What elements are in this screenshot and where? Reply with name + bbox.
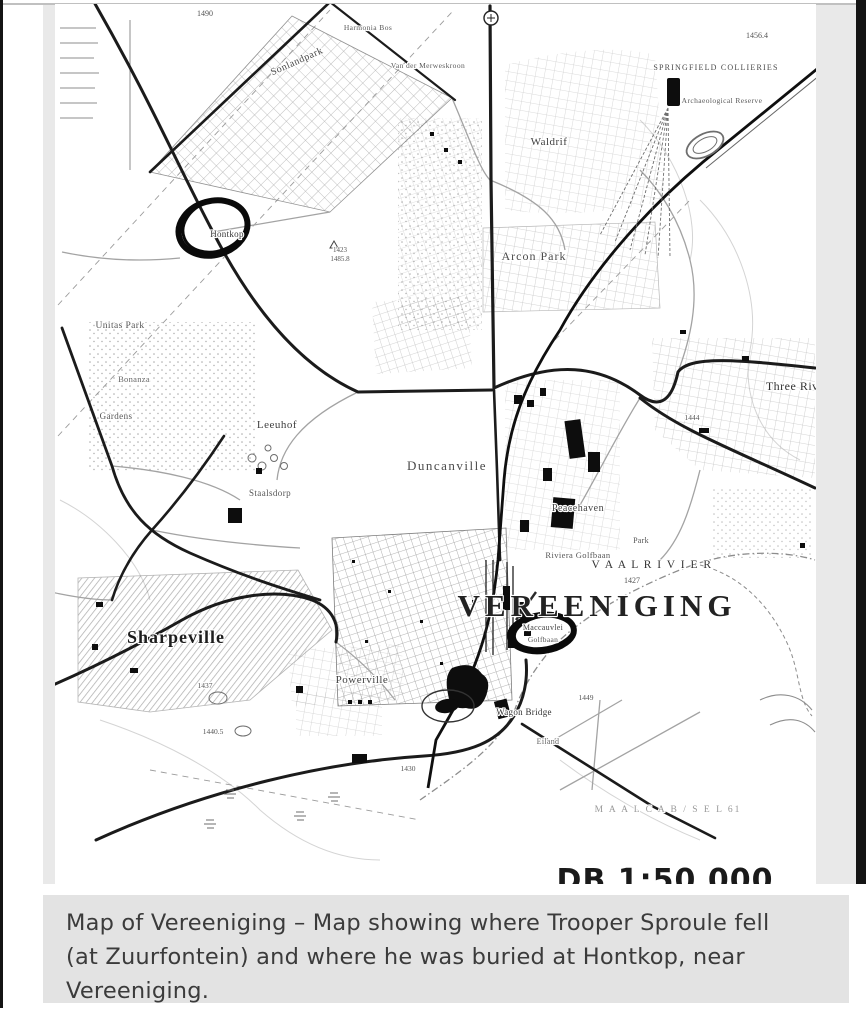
map-label-hontkop: Hontkop <box>210 229 244 239</box>
map-label-sharpeville: Sharpeville <box>127 627 225 647</box>
map-label-vaalrivier: V A A L R I V I E R <box>591 559 712 571</box>
route-marker-icon <box>484 11 498 25</box>
page: VEREENIGINGSharpevilleDuncanvilleArcon P… <box>0 0 866 1024</box>
map-label-golfbaan: Golfbaan <box>528 635 558 644</box>
map-label-park: Park <box>633 536 649 545</box>
caption-line-1: Map of Vereeniging – Map showing where T… <box>66 906 829 940</box>
map-label-spot-1449: 1449 <box>579 693 594 702</box>
map-image: VEREENIGINGSharpevilleDuncanvilleArcon P… <box>55 4 816 884</box>
map-label-scale-note: DB 1:50 000 <box>557 863 774 884</box>
map-label-riviera-golfbaan: Riviera Golfbaan <box>545 550 611 560</box>
map-label-staalsdorp: Staalsdorp <box>249 488 291 498</box>
map-label-farm-name: M A A L C A B / S E L 61 <box>595 805 742 815</box>
map-label-wagon-bridge: Wagon Bridge <box>496 707 552 717</box>
map-label-duncanville: Duncanville <box>407 458 487 473</box>
map-label-powerville: Powerville <box>336 674 389 686</box>
map-label-harmonia-bos: Harmonia Bos <box>344 23 392 32</box>
map-label-spot-1430: 1430 <box>401 764 416 773</box>
map-label-peacehaven: Peacehaven <box>552 503 604 514</box>
right-gutter <box>816 5 856 884</box>
map-label-gardens: Gardens <box>100 411 133 421</box>
map-label-spot-1490: 1490 <box>197 9 213 18</box>
map-label-spot-1423: 1423 <box>333 246 348 254</box>
map-label-spot-1437: 1437 <box>198 681 213 690</box>
map-label-eiland: Eiland <box>537 737 560 746</box>
map-label-three-rivers: Three Rivers <box>766 379 816 393</box>
map-label-van-der-merweskroon: Van der Merweskroon <box>391 61 465 70</box>
caption: Map of Vereeniging – Map showing where T… <box>43 895 849 1003</box>
right-border <box>856 0 866 884</box>
map-label-leeuhof: Leeuhof <box>257 419 297 431</box>
caption-line-3: Vereeniging. <box>66 974 829 1008</box>
map-label-vereeniging: VEREENIGING <box>458 588 737 623</box>
map-label-spot-1485: 1485.8 <box>330 255 350 263</box>
map-label-bonanza: Bonanza <box>118 374 150 384</box>
map-label-waldrif: Waldrif <box>531 136 568 148</box>
left-gutter <box>43 5 55 884</box>
map-label-maccauvlei: Maccauvlei <box>523 623 564 632</box>
map-container: VEREENIGINGSharpevilleDuncanvilleArcon P… <box>55 4 816 884</box>
map-label-spot-1444: 1444 <box>685 413 700 422</box>
map-label-springfield-collieries: SPRINGFIELD COLLIERIES <box>653 63 778 72</box>
map-label-spot-1427: 1427 <box>624 576 640 585</box>
caption-line-2: (at Zuurfontein) and where he was buried… <box>66 940 829 974</box>
map-label-spot-1456: 1456.4 <box>746 31 768 40</box>
map-label-archaeological-reserve: Archaeological Reserve <box>682 96 763 105</box>
map-label-unitas-park: Unitas Park <box>96 321 145 331</box>
left-border <box>0 0 3 1008</box>
map-label-arcon-park: Arcon Park <box>502 249 567 263</box>
map-label-spot-1440: 1440.5 <box>203 727 224 736</box>
